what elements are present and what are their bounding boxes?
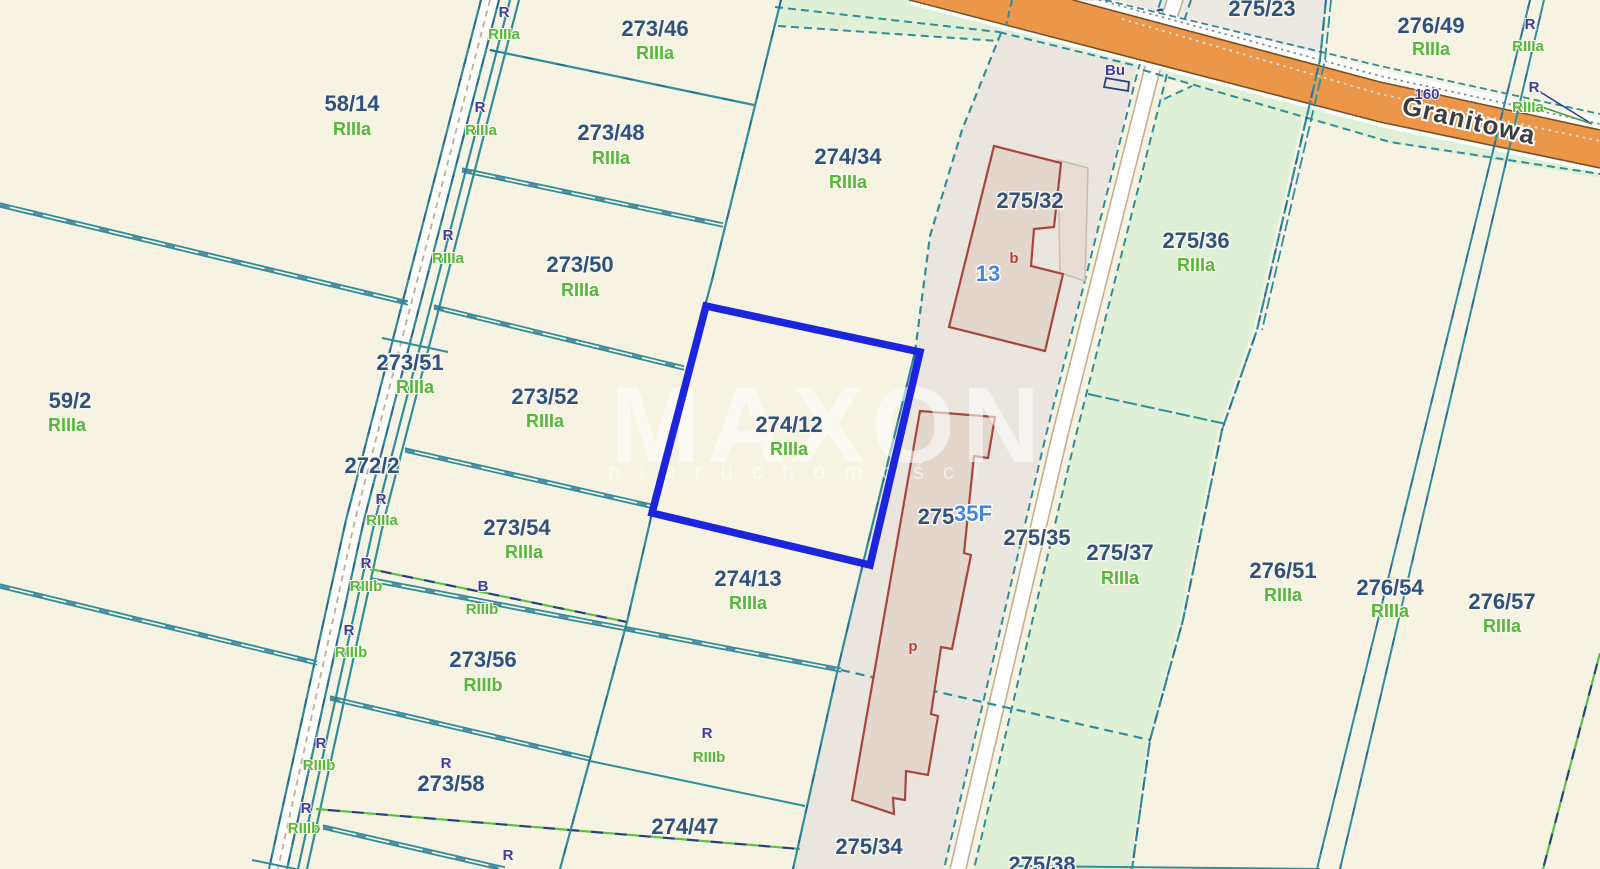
svg-text:273/51: 273/51 xyxy=(376,350,443,375)
svg-text:160: 160 xyxy=(1414,86,1439,103)
svg-text:RIIIa: RIIIa xyxy=(829,172,868,192)
svg-text:R: R xyxy=(702,725,713,742)
svg-text:275: 275 xyxy=(918,504,955,529)
svg-text:272/2: 272/2 xyxy=(344,453,399,478)
svg-text:273/54: 273/54 xyxy=(483,515,551,540)
svg-text:273/56: 273/56 xyxy=(449,647,516,672)
svg-text:276/54: 276/54 xyxy=(1356,575,1424,600)
svg-text:273/58: 273/58 xyxy=(417,771,484,796)
svg-text:RIIIa: RIIIa xyxy=(1512,38,1544,55)
svg-text:273/52: 273/52 xyxy=(511,384,578,409)
svg-text:RIIIa: RIIIa xyxy=(432,250,464,267)
svg-text:RIIIa: RIIIa xyxy=(592,148,631,168)
svg-text:35F: 35F xyxy=(954,501,992,526)
svg-text:R: R xyxy=(316,735,327,752)
svg-text:RIIIb: RIIIb xyxy=(288,820,321,837)
svg-text:R: R xyxy=(503,847,514,864)
svg-text:R: R xyxy=(361,555,372,572)
svg-text:RIIIb: RIIIb xyxy=(466,601,499,618)
svg-text:RIIIb: RIIIb xyxy=(335,644,368,661)
svg-text:RIIIa: RIIIa xyxy=(1264,585,1303,605)
svg-text:274/12: 274/12 xyxy=(755,412,822,437)
svg-text:275/38: 275/38 xyxy=(1008,852,1075,869)
svg-text:R: R xyxy=(1529,79,1540,96)
svg-text:RIIIa: RIIIa xyxy=(505,542,544,562)
svg-text:274/34: 274/34 xyxy=(814,144,882,169)
svg-text:59/2: 59/2 xyxy=(49,388,92,413)
svg-text:RIIIa: RIIIa xyxy=(1371,601,1410,621)
svg-text:RIIIa: RIIIa xyxy=(1483,616,1522,636)
svg-text:13: 13 xyxy=(976,261,1000,286)
svg-text:RIIIa: RIIIa xyxy=(396,377,435,397)
svg-text:R: R xyxy=(441,755,452,772)
svg-text:274/13: 274/13 xyxy=(714,566,781,591)
svg-text:276/57: 276/57 xyxy=(1468,589,1535,614)
svg-text:275/34: 275/34 xyxy=(835,834,903,859)
svg-text:R: R xyxy=(301,800,312,817)
svg-text:RIIIb: RIIIb xyxy=(464,675,503,695)
svg-text:276/51: 276/51 xyxy=(1249,558,1316,583)
svg-text:R: R xyxy=(376,491,387,508)
svg-text:RIIIb: RIIIb xyxy=(303,757,336,774)
svg-text:RIIIa: RIIIa xyxy=(1512,99,1544,116)
svg-text:275/35: 275/35 xyxy=(1003,525,1070,550)
svg-text:275/37: 275/37 xyxy=(1086,540,1153,565)
svg-text:275/32: 275/32 xyxy=(996,188,1063,213)
svg-text:RIIIa: RIIIa xyxy=(366,512,398,529)
svg-text:RIIIa: RIIIa xyxy=(770,439,809,459)
svg-text:RIIIa: RIIIa xyxy=(561,280,600,300)
svg-text:273/50: 273/50 xyxy=(546,252,613,277)
svg-text:RIIIa: RIIIa xyxy=(729,593,768,613)
svg-text:RIIIa: RIIIa xyxy=(636,43,675,63)
svg-text:RIIIa: RIIIa xyxy=(333,119,372,139)
svg-text:RIIIa: RIIIa xyxy=(1101,568,1140,588)
svg-text:274/47: 274/47 xyxy=(651,814,718,839)
svg-text:275/36: 275/36 xyxy=(1162,228,1229,253)
svg-text:RIIIb: RIIIb xyxy=(350,578,383,595)
svg-text:276/49: 276/49 xyxy=(1397,13,1464,38)
svg-text:RIIIa: RIIIa xyxy=(1177,255,1216,275)
svg-text:58/14: 58/14 xyxy=(324,91,380,116)
svg-text:R: R xyxy=(1525,16,1536,33)
svg-text:273/48: 273/48 xyxy=(577,120,644,145)
svg-text:p: p xyxy=(908,638,917,655)
svg-text:R: R xyxy=(443,227,454,244)
svg-text:RIIIa: RIIIa xyxy=(465,122,497,139)
svg-text:RIIIb: RIIIb xyxy=(693,749,726,766)
svg-text:RIIIa: RIIIa xyxy=(48,415,87,435)
svg-text:RIIIa: RIIIa xyxy=(526,411,565,431)
svg-text:R: R xyxy=(499,4,510,21)
svg-text:b: b xyxy=(1009,250,1018,267)
svg-text:Bu: Bu xyxy=(1105,62,1125,79)
svg-text:R: R xyxy=(475,99,486,116)
svg-text:273/46: 273/46 xyxy=(621,16,688,41)
svg-text:RIIIa: RIIIa xyxy=(1412,39,1451,59)
svg-text:275/23: 275/23 xyxy=(1228,0,1295,21)
svg-text:RIIIa: RIIIa xyxy=(488,26,520,43)
svg-text:R: R xyxy=(344,622,355,639)
svg-text:B: B xyxy=(478,578,489,595)
